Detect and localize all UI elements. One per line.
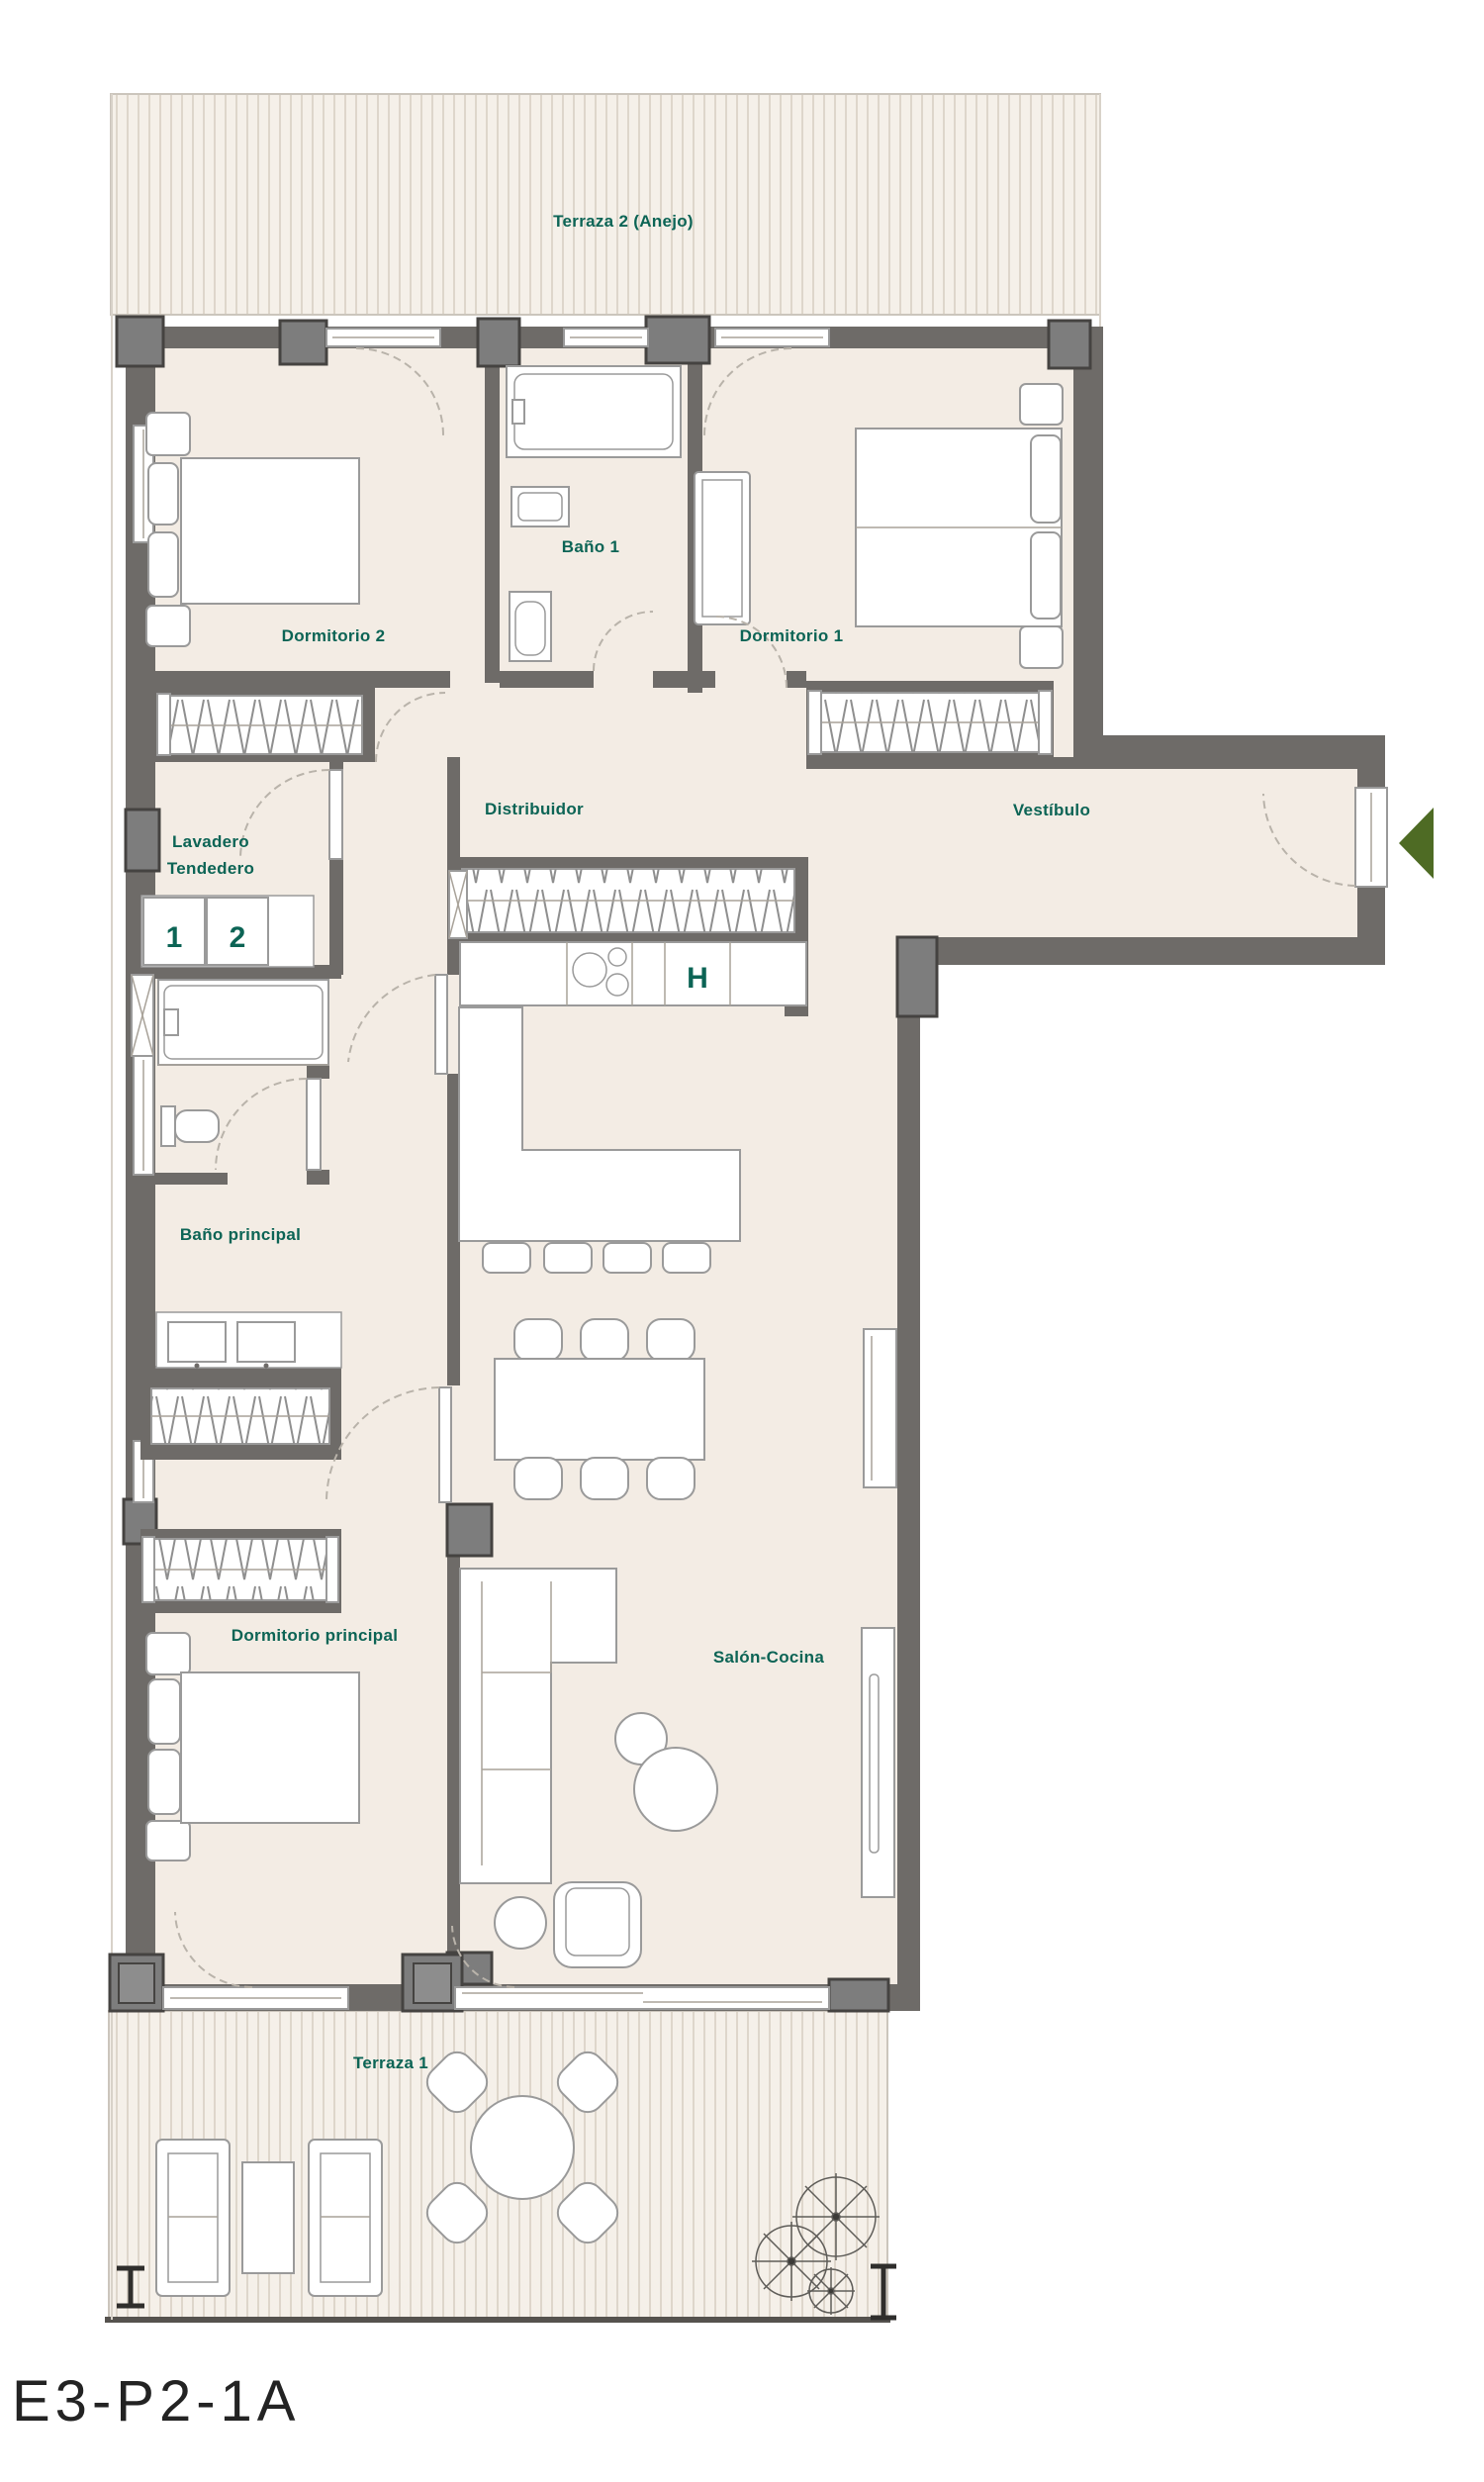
side-table	[495, 1897, 546, 1949]
floor-plan-canvas: 1 2 H	[0, 0, 1484, 2482]
room-label-dormitorio-principal: Dormitorio principal	[232, 1626, 398, 1645]
sideboard	[864, 1329, 896, 1487]
wardrobe-dormitorio1	[806, 681, 1054, 760]
window-dormitorio2-terrace	[326, 329, 440, 346]
room-label-distribuidor: Distribuidor	[485, 800, 584, 818]
wardrobe-bano-principal	[140, 1381, 341, 1460]
entrance-arrow-icon	[1399, 808, 1434, 879]
room-label-dormitorio2: Dormitorio 2	[282, 626, 386, 645]
oven-column-marker: H	[687, 962, 708, 995]
sliding-door-salon-terrace	[455, 1987, 829, 2009]
dryer-marker: 2	[230, 921, 246, 954]
plan-code: E3-P2-1A	[12, 2369, 300, 2434]
window-dormprincipal-terrace	[163, 1987, 348, 2009]
dining-set	[495, 1319, 704, 1499]
room-label-salon-cocina: Salón-Cocina	[713, 1648, 824, 1667]
coffee-table-large	[634, 1748, 717, 1831]
terrace-table-small	[242, 2162, 294, 2273]
entrance-door-opening	[1355, 788, 1387, 887]
pillar-hatched-laundry	[132, 975, 153, 1056]
room-label-tendedero: Tendedero	[167, 859, 254, 878]
room-label-dormitorio1: Dormitorio 1	[740, 626, 844, 645]
room-label-lavadero: Lavadero	[172, 832, 249, 851]
floor-plan-page: 1 2 H	[0, 0, 1484, 2482]
lavadero-appliances: 1 2	[141, 896, 314, 967]
wardrobe-dormitorio-principal	[140, 1529, 341, 1613]
window-bano1	[564, 329, 648, 346]
room-label-bano-principal: Baño principal	[180, 1225, 301, 1244]
wardrobe-dormitorio2	[155, 688, 375, 762]
window-shower-side	[134, 1056, 153, 1175]
room-label-terraza2: Terraza 2 (Anejo)	[553, 212, 694, 231]
terrace-2	[111, 94, 1100, 315]
window-dormitorio1-terrace	[715, 329, 829, 346]
wardrobe-kitchen	[447, 857, 808, 944]
room-label-vestibulo: Vestíbulo	[1013, 801, 1090, 819]
washer-marker: 1	[166, 921, 183, 954]
room-label-bano1: Baño 1	[562, 537, 619, 556]
room-label-terraza1: Terraza 1	[353, 2053, 428, 2072]
